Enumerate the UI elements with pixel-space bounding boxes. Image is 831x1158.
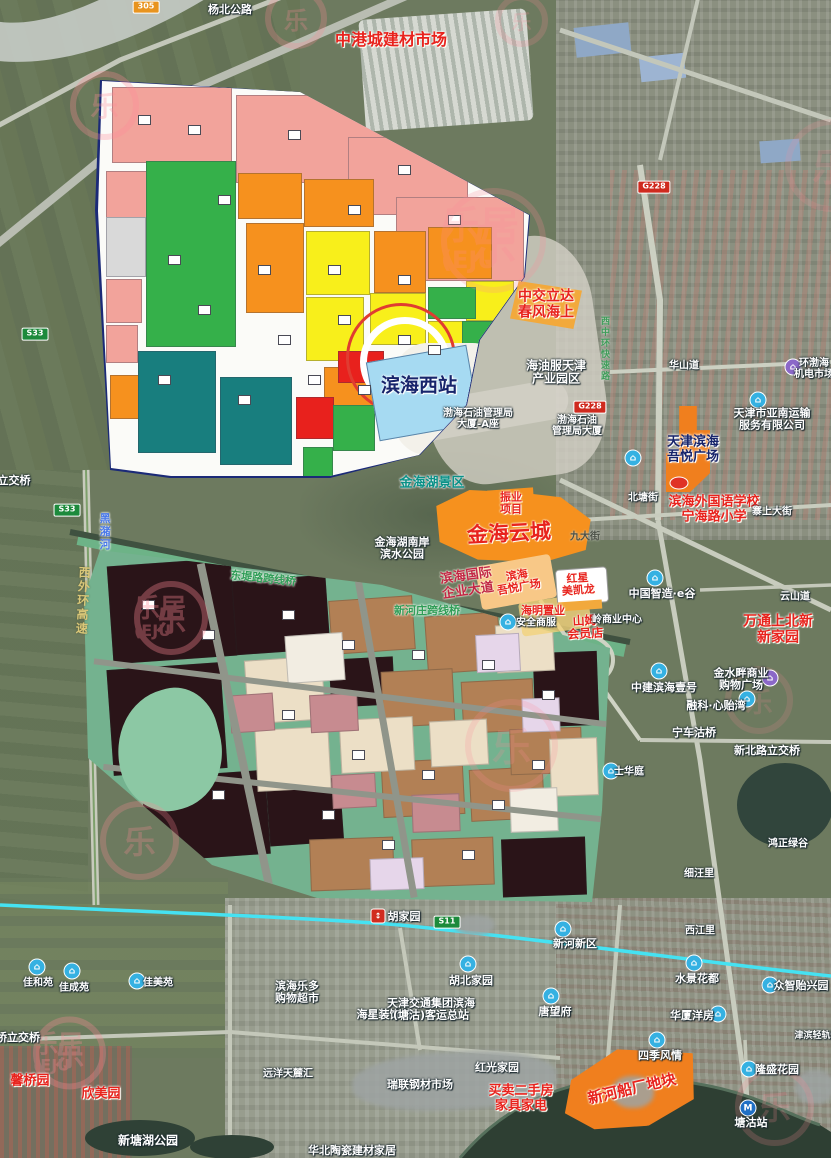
- label-hujiayuan: 胡家园: [388, 911, 421, 923]
- label-haiming-zhiye: 海明置业: [521, 605, 565, 617]
- parcel-code-chip: [288, 130, 301, 140]
- road-yunshan: [700, 585, 831, 590]
- parcel-code-chip: [278, 335, 291, 345]
- road-ningchegu: [640, 740, 831, 742]
- plan-parcel: [146, 161, 236, 347]
- parcel-code-chip: [238, 395, 251, 405]
- label-yangbei-road: 杨北公路: [208, 4, 252, 16]
- parcel-code-chip: [142, 600, 155, 610]
- plan-parcel: [138, 351, 216, 453]
- satellite-map[interactable]: 乐乐乐居(EJU乐乐居(EJU乐乐乐乐乐居(EJU乐乐乐乐 ⌂⌂⌂⌂⌂⌂⌂⌂⌂⌂…: [0, 0, 831, 1158]
- label-xiwangli: 细汪里: [684, 868, 714, 879]
- parcel-code-chip: [462, 850, 475, 860]
- blur-patch-metro: [455, 915, 495, 935]
- poi-icon-jiachengyuan: ⌂: [64, 963, 81, 980]
- parcel-code-chip: [398, 165, 411, 175]
- parcel-code-chip: [258, 265, 271, 275]
- xintanghu-pond-2: [190, 1135, 274, 1158]
- parcel-code-chip: [322, 810, 335, 820]
- label-jinhai-yuncheng: 金海云城: [466, 520, 551, 548]
- river-northwest: [0, 0, 220, 62]
- label-xinmeiyuan: 欣美园: [81, 1088, 120, 1103]
- label-interchange-west: 立交桥: [0, 475, 31, 487]
- parcel-code-chip: [308, 375, 321, 385]
- label-anquan-shangfu: 安全商服: [516, 617, 556, 628]
- poi-icon-tangwangfu: ⌂: [543, 988, 560, 1005]
- badge-g228-west: G228: [573, 401, 606, 414]
- label-huashan-road: 华山道: [669, 360, 699, 371]
- poi-icon-haiyang: ⌂: [625, 450, 642, 467]
- label-jiaheyuan: 佳和苑: [23, 977, 53, 988]
- parcel-code-chip: [202, 630, 215, 640]
- badge-g228-north: G228: [637, 181, 670, 194]
- label-hongzheng-lvgu: 鸿正绿谷: [768, 838, 808, 849]
- plan-parcel: [106, 325, 138, 363]
- parcel-code-chip: [282, 710, 295, 720]
- poi-icon-zhongjian: ⌂: [651, 663, 668, 680]
- label-hongguang-jiayuan: 红光家园: [475, 1062, 519, 1074]
- poi-icon-tanggu-metro: M: [740, 1100, 757, 1117]
- parcel-code-chip: [218, 195, 231, 205]
- label-jiachengyuan: 佳成苑: [59, 982, 89, 993]
- road-hujiayuan: [400, 928, 420, 1050]
- label-heizhu-river: 黑潴河: [98, 513, 110, 552]
- parcel-code-chip: [422, 770, 435, 780]
- parcel-code-chip: [158, 375, 171, 385]
- parcel-code-chip: [338, 315, 351, 325]
- road-top-right: [560, 30, 831, 120]
- label-ling-commercial-center: 岭商业中心: [592, 614, 642, 625]
- label-xiwaihuan-expwy: 西外环高速: [73, 566, 90, 637]
- parcel-code-chip: [398, 335, 411, 345]
- label-jinhai-south-park: 金海湖南岸滨水公园: [375, 537, 430, 562]
- label-shihuating: 士华庭: [614, 766, 644, 777]
- label-keyun-terminal: 天津交通集团滨海(塘沽)客运总站: [387, 998, 475, 1023]
- parcel-code-chip: [542, 690, 555, 700]
- label-binhai-leduo: 滨海乐多购物超市: [275, 981, 319, 1006]
- label-secondhand-ad: 买卖二手房家具家电: [488, 1084, 553, 1113]
- parcel-code-chip: [198, 305, 211, 315]
- plan-parcel: [309, 693, 359, 733]
- plan-parcel: [303, 447, 333, 477]
- plan-parcel: [429, 719, 489, 768]
- label-jinbin-light-rail: 津滨轻轨快速路: [794, 1031, 831, 1041]
- badge-305: 305: [133, 1, 160, 14]
- label-xinhe-new-area: 新河新区: [553, 938, 597, 950]
- plan-parcel: [333, 405, 375, 451]
- label-hubei-jiayuan: 胡北家园: [449, 975, 493, 987]
- badge-s11: S11: [434, 916, 461, 929]
- parcel-code-chip: [382, 840, 395, 850]
- blur-patch-right-edge: [795, 1070, 831, 1104]
- poi-icon-shuijing: ⌂: [686, 955, 703, 972]
- parcel-code-chip: [342, 640, 355, 650]
- label-longsheng-garden: 隆盛花园: [755, 1064, 799, 1076]
- label-tianjin-binhai-wuyue: 天津滨海吾悦广场: [667, 435, 719, 464]
- poi-icon-school: [670, 477, 689, 490]
- label-rongke-xinyiwan: 融科·心贻湾: [686, 700, 745, 712]
- plan-parcel: [304, 179, 374, 227]
- plan-parcel: [106, 279, 142, 323]
- poi-icon-anquan: ⌂: [500, 614, 517, 631]
- parcel-code-chip: [482, 660, 495, 670]
- poi-icon-xinhe-new-area: ⌂: [555, 921, 572, 938]
- label-huanbohai-market: 环渤海机电市场: [794, 358, 831, 380]
- label-ningchegu-bridge: 宁车沽桥: [672, 727, 716, 739]
- poi-icon-jiaheyuan: ⌂: [29, 959, 46, 976]
- label-zhaishang-street: 寨上大街: [752, 506, 792, 517]
- poi-icon-hujiayuan-rail: ↕: [371, 909, 386, 924]
- parcel-code-chip: [352, 750, 365, 760]
- parcel-code-chip: [348, 205, 361, 215]
- parcel-code-chip: [448, 215, 461, 225]
- label-jinhai-lake-scenic: 金海湖景区: [399, 477, 464, 492]
- badge-s33-north: S33: [22, 328, 49, 341]
- parcel-code-chip: [532, 760, 545, 770]
- poi-icon-siji: ⌂: [649, 1032, 666, 1049]
- parcel-code-chip: [188, 125, 201, 135]
- label-zhongzhi-yixingyuan: 众智贻兴园: [774, 980, 829, 992]
- label-siji-fengqing: 四季风情: [638, 1050, 682, 1062]
- label-xinhezhuang-bridge: 新河庄跨线桥: [394, 605, 460, 617]
- plan-parcel: [296, 397, 334, 439]
- parcel-code-chip: [328, 265, 341, 275]
- road-g228: [640, 165, 660, 520]
- parcel-code-chip: [358, 385, 371, 395]
- label-bohai-bldg-a: 渤海石油管理局大厦-A座: [443, 408, 513, 430]
- label-huabei-taoci: 华北陶瓷建材家居: [308, 1145, 396, 1157]
- label-jiameiyuan: 佳美苑: [143, 977, 173, 988]
- label-yuanyang-tianluhui: 远洋天麓汇: [263, 1068, 313, 1079]
- parcel-code-chip: [492, 800, 505, 810]
- label-china-smart-valley: 中国智造·e谷: [629, 588, 696, 600]
- parcel-code-chip: [428, 345, 441, 355]
- label-jinshuipan-mall: 金水畔商业购物广场: [714, 668, 769, 693]
- plan-parcel: [428, 227, 492, 279]
- label-binhai-west-station: 滨海西站: [381, 375, 457, 396]
- plan-parcel: [284, 632, 345, 684]
- label-zhongjian-binhai-no1: 中建滨海壹号: [631, 682, 697, 694]
- label-qiao-interchange-sw: 桥立交桥: [0, 1032, 40, 1044]
- label-zhenye-project: 振业项目: [500, 492, 522, 517]
- label-redstar-macalline: 红星美凯龙: [561, 572, 596, 599]
- road-g228-feeder: [660, 0, 700, 160]
- label-yunshan-road: 云山道: [780, 591, 810, 602]
- parcel-code-chip: [398, 275, 411, 285]
- label-xijiangli: 西江里: [685, 925, 715, 936]
- plan-parcel: [501, 837, 587, 898]
- plan-parcel: [238, 173, 302, 219]
- label-wantong-new-home: 万通上北新新家园: [743, 614, 813, 645]
- plan-parcel: [112, 87, 232, 163]
- label-beitang-street: 北塘街: [628, 492, 658, 503]
- parcel-code-chip: [138, 115, 151, 125]
- label-bohai-bldg: 渤海石油管理局大厦: [552, 415, 602, 437]
- label-xinbeilu-interchange: 新北路立交桥: [734, 745, 800, 757]
- plan-parcel: [106, 217, 146, 277]
- label-xinqiaoyuan: 馨桥园: [10, 1075, 49, 1090]
- parcel-code-chip: [168, 255, 181, 265]
- label-yanan-transport: 天津市亚南运输服务有限公司: [734, 408, 811, 433]
- label-xintanghu-park: 新塘湖公园: [118, 1134, 178, 1147]
- label-shuijing-huadu: 水景花都: [675, 973, 719, 985]
- poi-icon-egu: ⌂: [647, 570, 664, 587]
- label-huaxia-yangfang: 华厦洋房: [670, 1010, 714, 1022]
- label-ruilian-steel-market: 瑞联钢材市场: [387, 1079, 453, 1091]
- label-tanggu-station: 塘沽站: [735, 1117, 768, 1129]
- jinshuipan-lake: [737, 763, 831, 847]
- plan-parcel: [369, 857, 424, 891]
- badge-s33-south: S33: [54, 504, 81, 517]
- plan-parcel: [220, 377, 292, 465]
- label-binhai-foreign-school: 滨海外国语学校宁海路小学: [668, 495, 759, 524]
- poi-icon-hubei-jiayuan: ⌂: [460, 956, 477, 973]
- plan-parcel: [306, 231, 370, 295]
- label-tangwangfu: 唐望府: [539, 1006, 572, 1018]
- parcel-code-chip: [412, 650, 425, 660]
- parcel-code-chip: [282, 610, 295, 620]
- label-haiyou-park: 海油服天津产业园区: [526, 360, 586, 387]
- label-xizhonghuan-expwy: 西中环快速路: [599, 316, 609, 382]
- plan-parcel: [246, 223, 304, 313]
- label-zhongjiao-lida: 中交立达春风海上: [518, 289, 574, 320]
- label-zhonggang-market: 中港城建材市场: [335, 31, 447, 49]
- label-jiu-street: 九大街: [570, 531, 600, 542]
- parcel-code-chip: [212, 790, 225, 800]
